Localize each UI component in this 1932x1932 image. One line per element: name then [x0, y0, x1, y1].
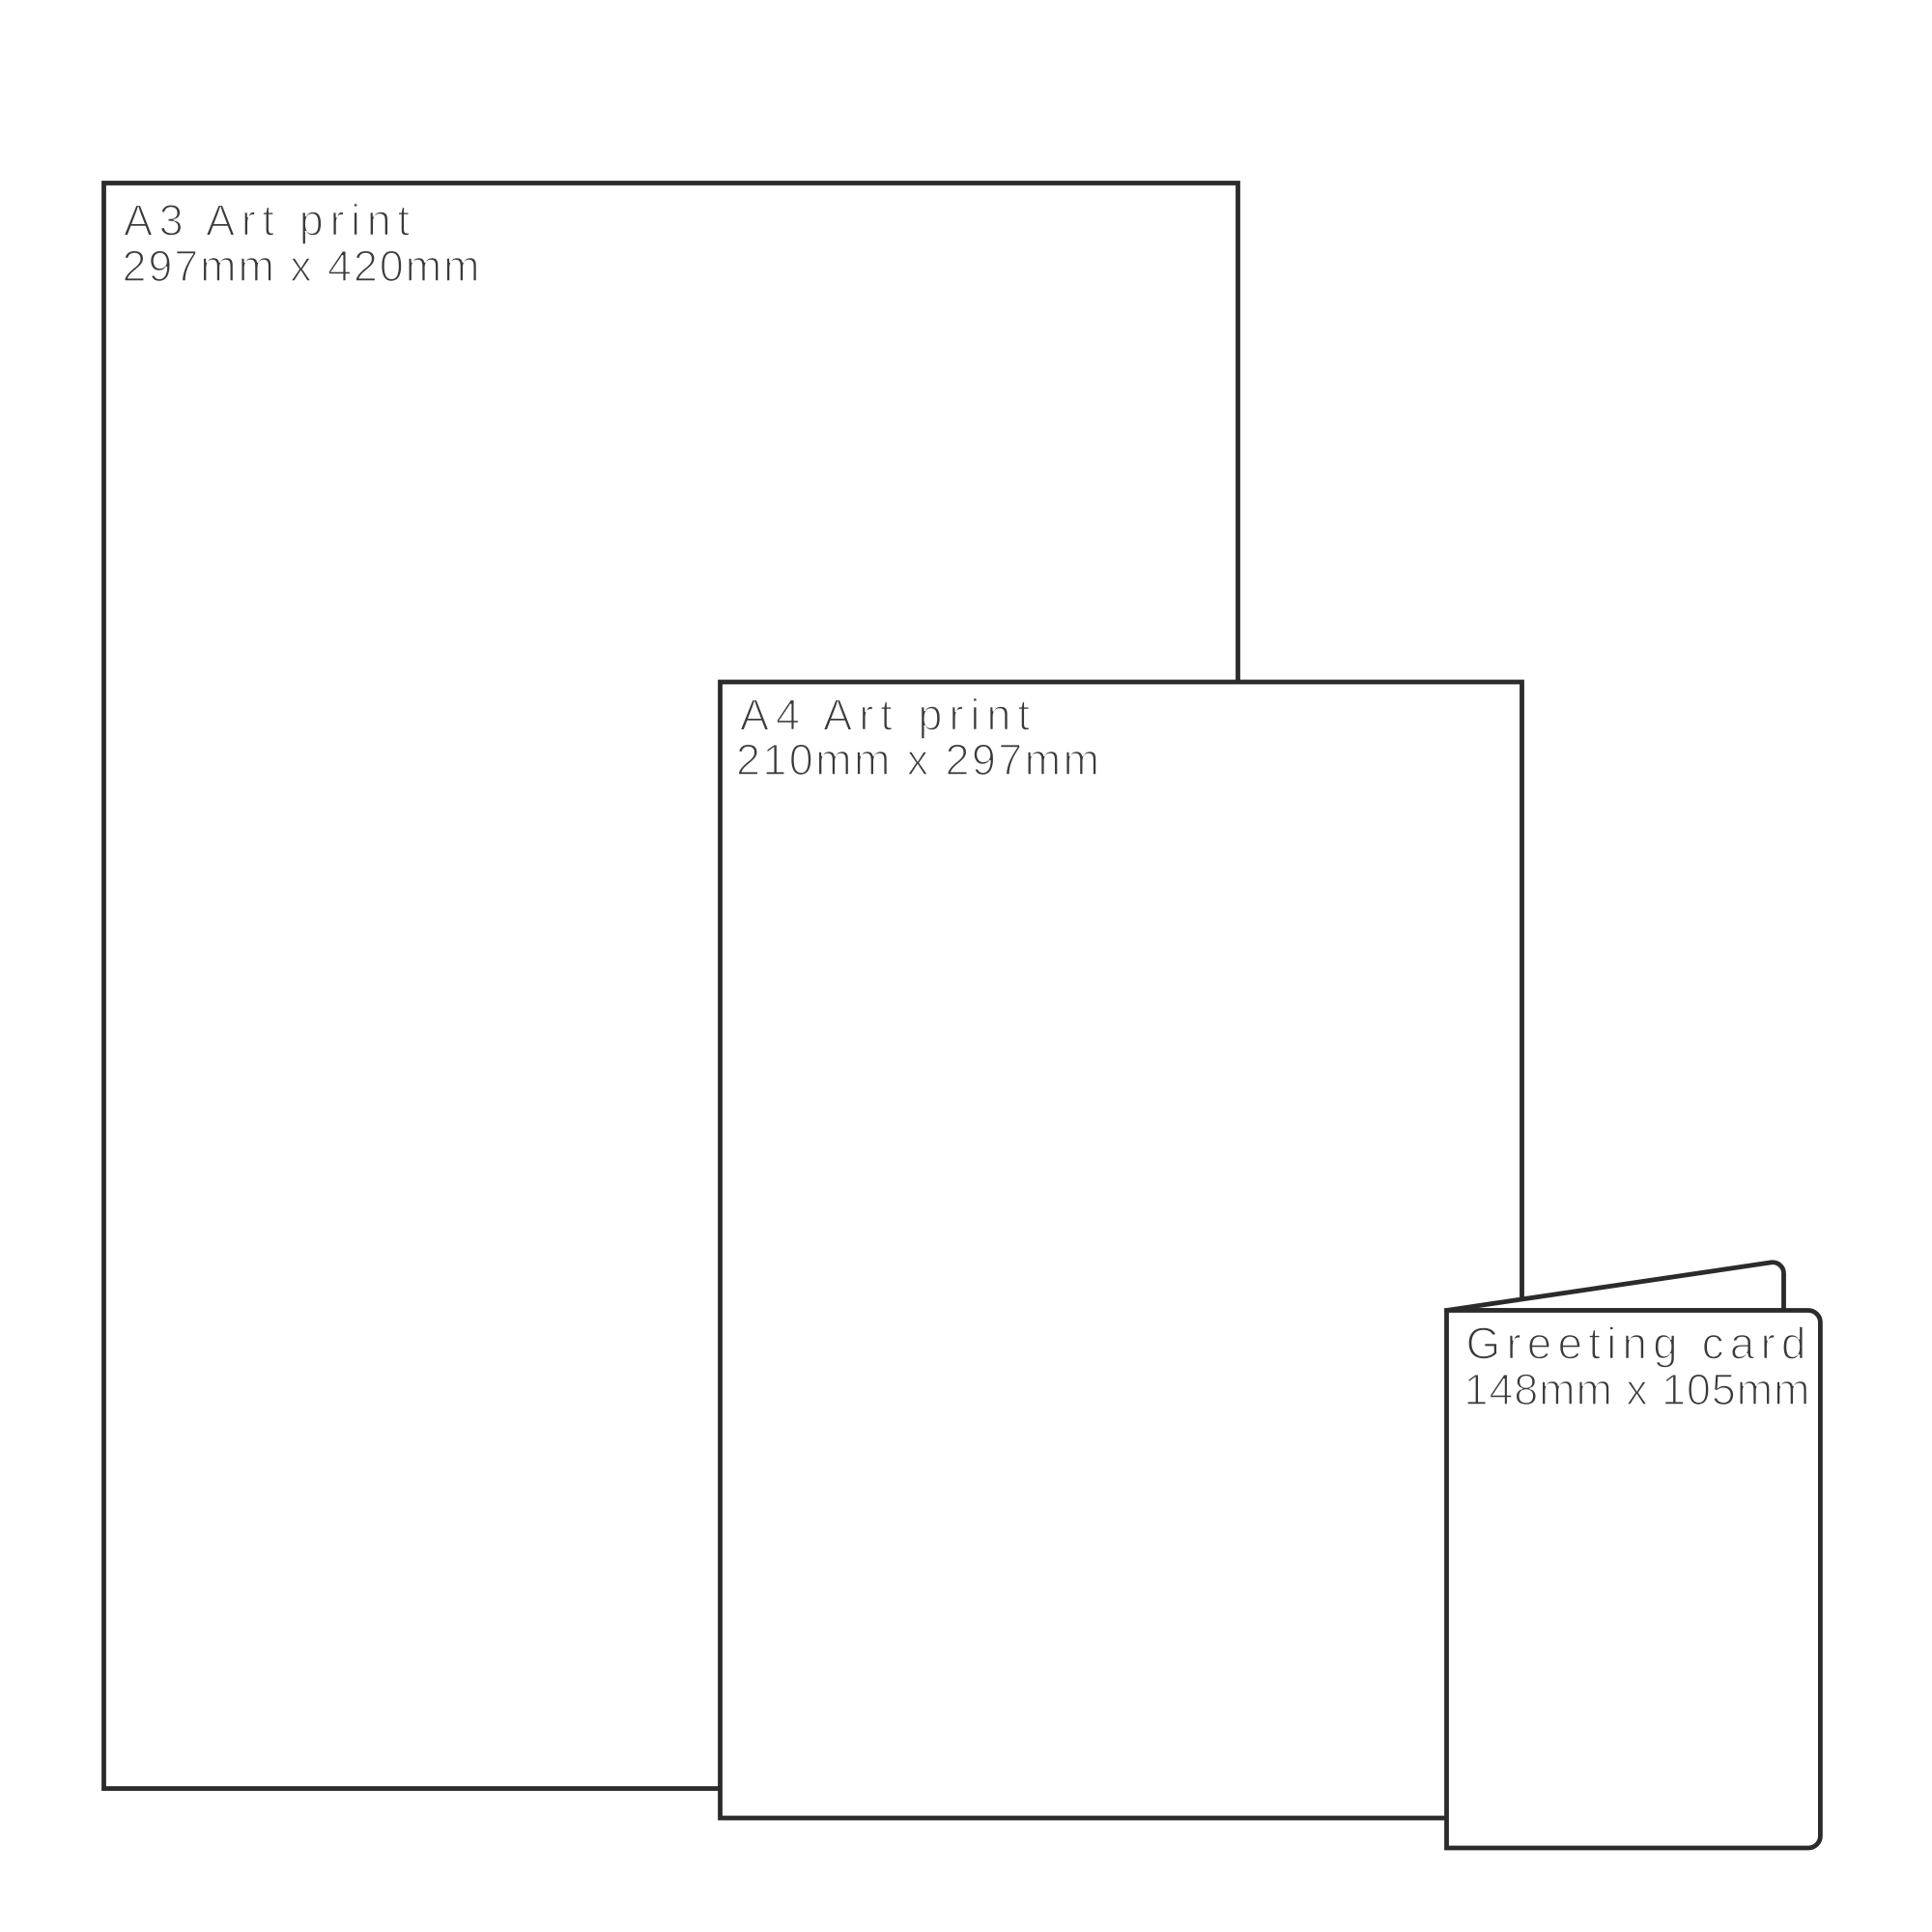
svg-text:148mm x 105mm: 148mm x 105mm: [1464, 1365, 1810, 1414]
svg-text:A4 Art print: A4 Art print: [740, 690, 1030, 739]
svg-text:297mm x 420mm: 297mm x 420mm: [123, 241, 480, 291]
svg-text:A3 Art print: A3 Art print: [124, 195, 410, 244]
svg-text:210mm x 297mm: 210mm x 297mm: [736, 735, 1099, 784]
